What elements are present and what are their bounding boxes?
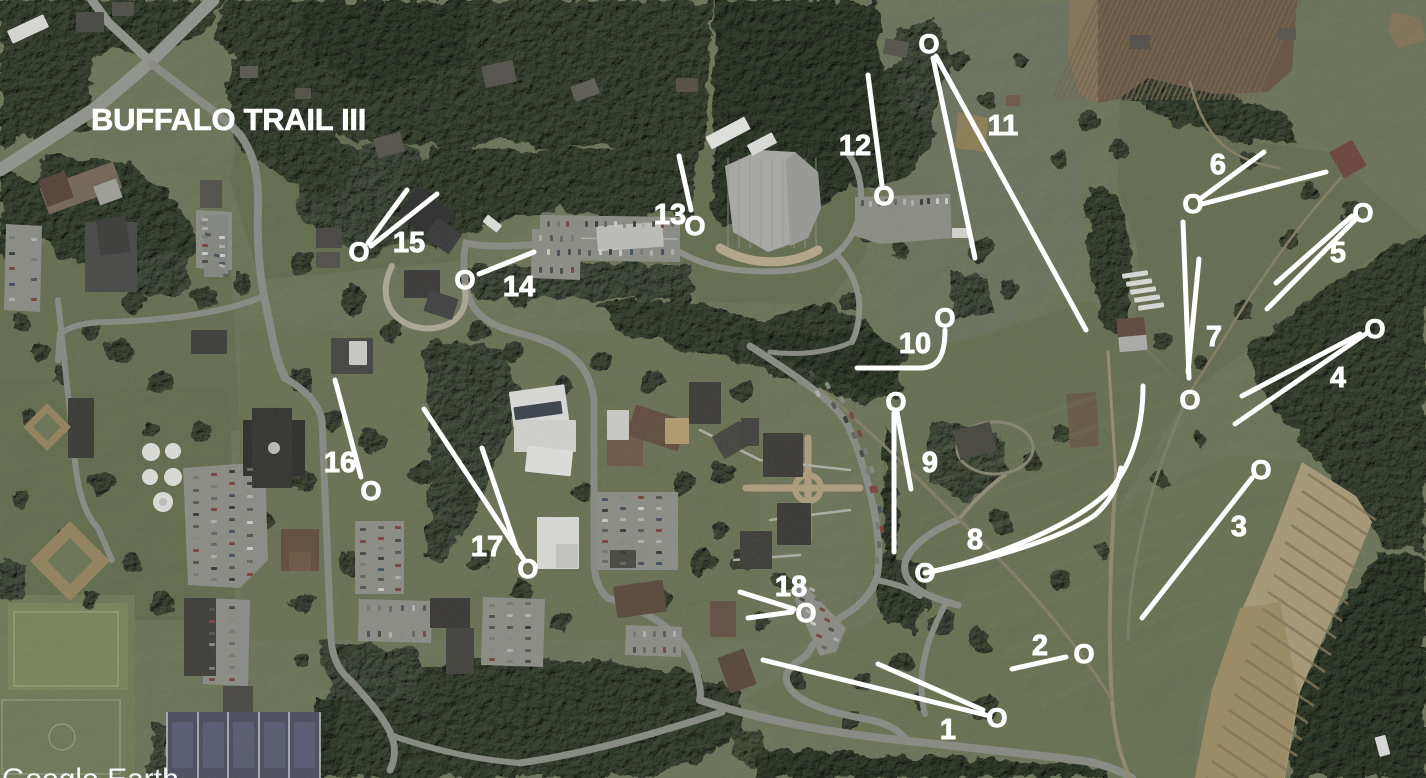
svg-text:16: 16: [324, 447, 356, 479]
svg-text:4: 4: [1330, 362, 1346, 394]
svg-text:O: O: [885, 387, 906, 417]
svg-text:2: 2: [1032, 630, 1048, 662]
svg-text:5: 5: [1330, 237, 1346, 269]
svg-text:O: O: [918, 29, 939, 59]
svg-text:O: O: [1182, 189, 1203, 219]
svg-text:9: 9: [922, 447, 938, 479]
svg-text:O: O: [986, 703, 1007, 733]
svg-text:O: O: [1352, 198, 1373, 228]
svg-text:O: O: [934, 303, 955, 333]
svg-text:7: 7: [1206, 321, 1222, 353]
svg-text:O: O: [914, 558, 935, 588]
svg-text:3: 3: [1231, 511, 1247, 543]
svg-text:BUFFALO TRAIL III: BUFFALO TRAIL III: [91, 102, 366, 137]
svg-text:Google Earth: Google Earth: [2, 763, 179, 778]
svg-text:O: O: [1073, 639, 1094, 669]
svg-text:10: 10: [899, 328, 931, 360]
svg-text:11: 11: [988, 110, 1019, 142]
svg-text:O: O: [1364, 314, 1385, 344]
svg-text:O: O: [348, 237, 369, 267]
svg-text:O: O: [684, 211, 705, 241]
svg-text:O: O: [360, 476, 381, 506]
svg-text:1: 1: [940, 714, 956, 746]
svg-text:14: 14: [503, 271, 535, 303]
svg-text:O: O: [1179, 385, 1200, 415]
svg-text:O: O: [873, 181, 894, 211]
svg-text:13: 13: [654, 199, 686, 231]
svg-text:O: O: [517, 554, 538, 584]
svg-text:O: O: [1250, 455, 1271, 485]
svg-text:15: 15: [393, 227, 425, 259]
svg-text:8: 8: [967, 524, 983, 556]
svg-text:12: 12: [839, 130, 871, 162]
svg-text:18: 18: [775, 571, 807, 603]
svg-text:6: 6: [1210, 149, 1226, 181]
svg-text:17: 17: [471, 531, 503, 563]
svg-text:O: O: [454, 265, 475, 295]
